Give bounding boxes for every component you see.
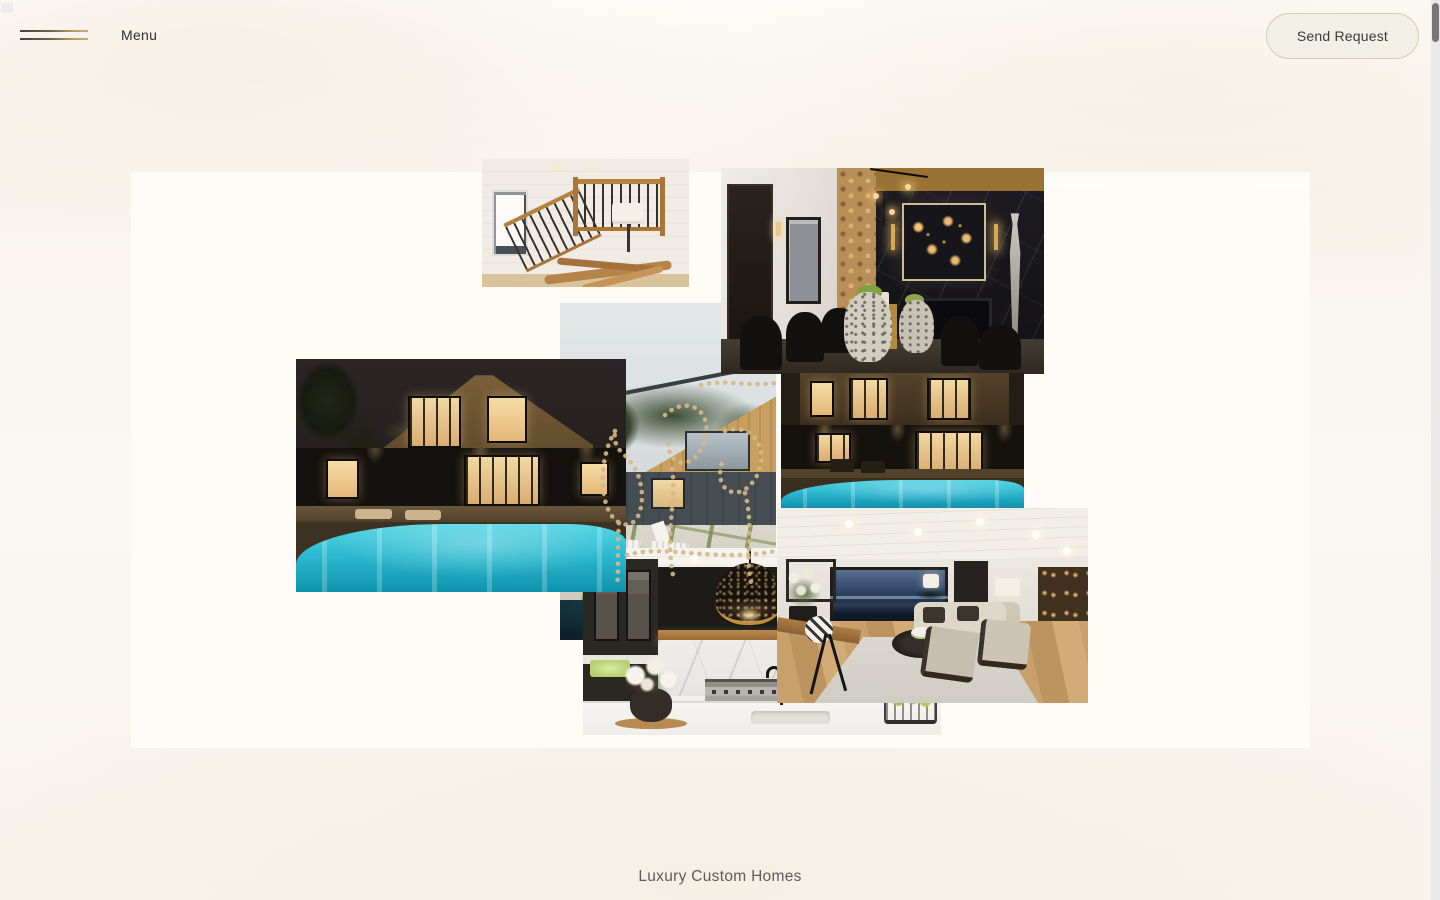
send-request-button[interactable]: Send Request [1266, 13, 1419, 59]
pillow [957, 606, 979, 622]
page-corner-artifact [1, 3, 13, 13]
lit-glass-doors [464, 455, 540, 506]
sconce-light [776, 222, 781, 236]
upper-window [685, 431, 750, 471]
menu-label[interactable]: Menu [121, 27, 157, 43]
table-lamp [612, 203, 643, 225]
armchair [920, 625, 979, 683]
textured-vase [899, 300, 935, 354]
chandelier-bulb [873, 193, 879, 199]
honeycomb-art [902, 203, 986, 281]
armchair [977, 619, 1031, 671]
white-flowers [612, 653, 691, 698]
gold-sconce [891, 224, 895, 250]
pool-water [296, 524, 626, 592]
scrollbar-thumb[interactable] [1432, 3, 1439, 42]
patio-chair [830, 459, 854, 471]
lit-window [487, 396, 527, 443]
sink [751, 711, 830, 724]
dining-chair [740, 316, 782, 370]
gold-sconce [994, 224, 998, 250]
photo-staircase[interactable] [482, 159, 689, 287]
lit-window [810, 381, 834, 417]
lamp-shade [923, 574, 939, 588]
dining-chair [979, 325, 1021, 370]
recessed-light [914, 528, 922, 536]
recessed-light [976, 518, 984, 526]
lit-glass-doors [915, 431, 983, 475]
lit-window [927, 378, 971, 419]
glass-cabinet [626, 570, 651, 641]
newel-post [573, 177, 578, 236]
dining-chair [786, 312, 825, 361]
recessed-light [690, 554, 698, 562]
dining-chair [941, 316, 980, 365]
photo-pool-house-night-close[interactable] [781, 373, 1024, 510]
menu-button[interactable] [20, 22, 120, 48]
scrollbar-track[interactable] [1431, 0, 1440, 900]
lit-window [326, 459, 359, 499]
hamburger-lines-icon [20, 30, 120, 40]
textured-vase [844, 292, 892, 362]
lit-window [580, 462, 610, 497]
framed-art [786, 217, 822, 304]
lounger [355, 509, 391, 518]
lamp-shade [995, 578, 1020, 596]
footer-tagline: Luxury Custom Homes [0, 868, 1440, 886]
lounger [405, 510, 441, 519]
bar-area [1038, 567, 1088, 626]
lit-window [849, 378, 888, 419]
pillow [923, 607, 945, 623]
lamp-stem [627, 224, 630, 252]
newel-post [660, 177, 665, 236]
patio-chair [861, 461, 885, 473]
pendant-glow [737, 608, 762, 623]
lit-window [408, 396, 461, 447]
chandelier-rod [883, 193, 885, 226]
lit-window [651, 478, 686, 508]
photo-pool-house-night-wide[interactable] [296, 359, 626, 592]
dark-siding [612, 472, 776, 526]
photo-dining-room[interactable] [721, 168, 1044, 374]
photo-living-room[interactable] [777, 508, 1088, 703]
